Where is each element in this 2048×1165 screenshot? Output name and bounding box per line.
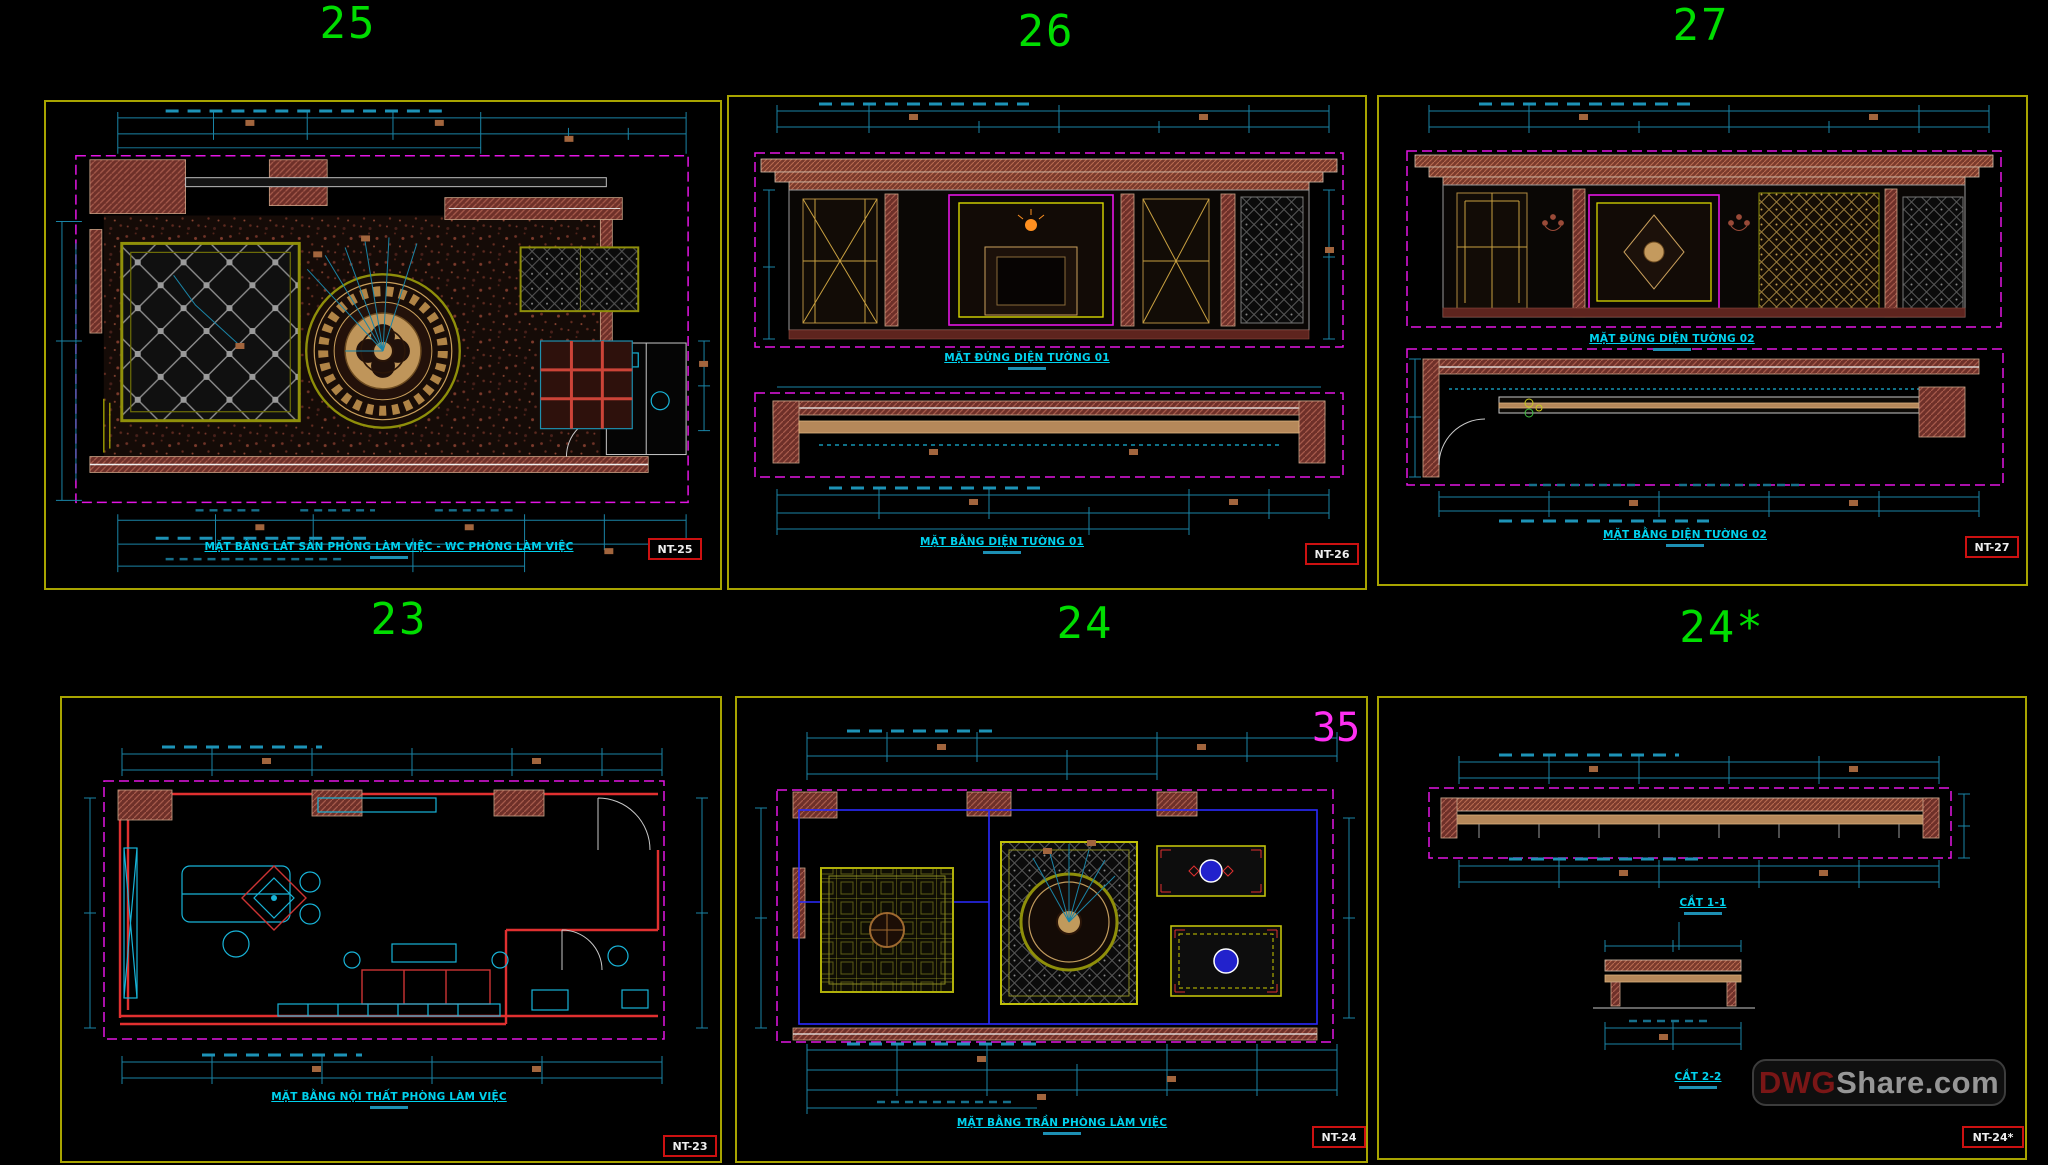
dimension-lines-bottom [1439, 491, 1979, 521]
sheet-label-box-25: NT-25 [648, 538, 702, 560]
viewport-sheet-23: MẶT BẰNG NỘI THẤT PHÒNG LÀM VIỆC NT-23 [60, 696, 722, 1163]
dimension-lines-sec1 [1459, 859, 1939, 888]
plan-boundary [104, 781, 664, 1039]
tile-floor [122, 243, 299, 420]
cornice [761, 159, 1337, 190]
viewport-sheet-25: MẶT BẰNG LÁT SÀN PHÒNG LÀM VIỆC - WC PHÒ… [44, 100, 722, 590]
dimension-lines-bottom [777, 488, 1329, 535]
drawing-title-27-elevation: MẶT ĐỨNG DIỆN TƯỜNG 02 [1512, 333, 1832, 351]
coffee-table [392, 944, 456, 962]
elevation-wall [789, 190, 1309, 339]
section-2-2 [1593, 922, 1755, 1050]
detail-annotation-35: 35 [1312, 708, 1360, 748]
sheet-number-24: 24 [1015, 602, 1155, 646]
section-1-1 [1429, 788, 1970, 858]
lattice-panel-gold [1759, 193, 1879, 313]
console-center [949, 195, 1113, 325]
furniture [124, 798, 508, 1016]
dimension-lines-sides [84, 798, 708, 1028]
scale-mark [983, 551, 1021, 554]
scale-mark [1043, 1132, 1081, 1135]
sofa [362, 970, 490, 1004]
cornice [1415, 155, 1993, 185]
sheet-number-25: 25 [278, 2, 418, 46]
dimension-lines-top [118, 111, 686, 154]
scale-mark [1679, 1086, 1717, 1089]
viewport-sheet-24: 35 MẶT BẰNG TRẦN PHÒNG LÀM VIỆC NT-24 [735, 696, 1368, 1163]
door-left [1457, 193, 1527, 311]
dimension-lines-top [807, 731, 1337, 780]
wc-tile-grid [541, 341, 633, 429]
sheet-number-24s: 24* [1652, 606, 1792, 650]
console-center [1589, 195, 1719, 309]
wall-elevation-01 [729, 97, 1365, 588]
scale-mark [370, 1106, 408, 1109]
plan-strip [1407, 349, 2003, 485]
dimension-lines-top [1429, 104, 1989, 133]
dome-light [1214, 949, 1238, 973]
drawing-title-25: MẶT BẰNG LÁT SÀN PHÒNG LÀM VIỆC - WC PHÒ… [199, 541, 579, 559]
plan-strip [755, 387, 1343, 477]
sheet-label-box-24s: NT-24* [1962, 1126, 2024, 1148]
sheet-number-23: 23 [329, 598, 469, 642]
sheet-label-box-27: NT-27 [1965, 536, 2019, 558]
drawing-title-26-elevation: MẶT ĐỨNG DIỆN TƯỜNG 01 [867, 352, 1187, 370]
light-box-top [1157, 846, 1265, 896]
sheet-label-box-24: NT-24 [1312, 1126, 1366, 1148]
rug-lattice [521, 247, 639, 311]
viewport-sheet-26: MẶT ĐỨNG DIỆN TƯỜNG 01 MẶT BẰNG DIỆN TƯỜ… [727, 95, 1367, 590]
door-left [803, 199, 877, 323]
scale-mark [370, 556, 408, 559]
drawing-title-27-plan: MẶT BẰNG DIỆN TƯỜNG 02 [1525, 529, 1845, 547]
dome-light [1200, 860, 1222, 882]
lattice-panel [1903, 197, 1963, 311]
dimension-lines-top [1459, 755, 1939, 784]
ceiling-medallion-panel [1001, 840, 1137, 1004]
elevation-wall [1443, 185, 1965, 317]
scale-mark [1684, 912, 1722, 915]
lamp-glyph [1025, 219, 1037, 231]
dimension-lines-bottom [807, 1044, 1337, 1114]
sheet-number-26: 26 [976, 10, 1116, 54]
door-right [1143, 199, 1209, 323]
watermark-suffix: Share.com [1836, 1065, 1999, 1101]
section-title-2-2: CẮT 2-2 [1648, 1071, 1748, 1089]
sheet-label-box-26: NT-26 [1305, 543, 1359, 565]
lattice-panel [1241, 197, 1303, 323]
drawing-title-26-plan: MẶT BẰNG DIỆN TƯỜNG 01 [842, 536, 1162, 554]
baseboard [1443, 308, 1965, 317]
light-box-bottom [1171, 926, 1281, 996]
wc-fixtures [532, 946, 648, 1010]
sheet-number-27: 27 [1631, 4, 1771, 48]
baseboard [789, 330, 1309, 339]
viewport-sheet-27: MẶT ĐỨNG DIỆN TƯỜNG 02 MẶT BẰNG DIỆN TƯỜ… [1377, 95, 2028, 586]
watermark-prefix: DWG [1759, 1065, 1836, 1101]
watermark: DWGShare.com [1752, 1059, 2006, 1106]
drawing-title-23: MẶT BẰNG NỘI THẤT PHÒNG LÀM VIỆC [264, 1091, 514, 1109]
floor-finish-plan-25 [46, 102, 720, 588]
dimension-lines-top [777, 104, 1329, 133]
cad-sheet-canvas: 25 26 27 23 24 24* [0, 0, 2048, 1165]
scale-mark [1666, 544, 1704, 547]
dimension-lines-bottom [122, 1055, 662, 1084]
dimension-lines-top [122, 747, 662, 776]
section-title-1-1: CẮT 1-1 [1653, 897, 1753, 915]
coffered-panel [821, 868, 953, 992]
sheet-label-box-23: NT-23 [663, 1135, 717, 1157]
credenza [278, 1004, 500, 1016]
ceiling-plan-24 [737, 698, 1366, 1161]
scale-mark [1653, 348, 1691, 351]
drawing-title-24: MẶT BẰNG TRẦN PHÒNG LÀM VIỆC [937, 1117, 1187, 1135]
walls [118, 790, 658, 1024]
scale-mark [1008, 367, 1046, 370]
